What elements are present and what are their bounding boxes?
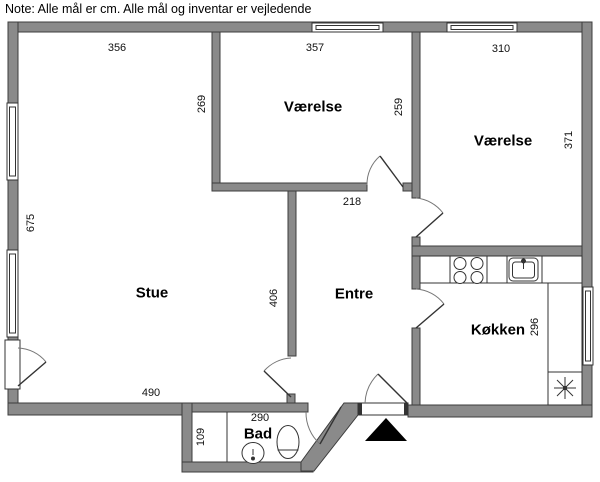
wall-entrance-diagonal [301, 403, 358, 471]
room-label-vaerelse2: Værelse [474, 133, 532, 150]
floorplan-svg [0, 0, 600, 482]
dim-bedroom1-left: 269 [196, 95, 208, 113]
asterisk-symbol-icon [554, 377, 576, 399]
kitchen-sink-icon [509, 258, 538, 281]
dim-bedroom2-top: 310 [492, 43, 510, 55]
wall-bad-bottom [182, 462, 313, 472]
wall-bedroom1-left [212, 32, 220, 184]
door-balcony-icon [5, 340, 46, 389]
door-entrance-icon [358, 374, 408, 415]
room-label-stue: Stue [136, 285, 169, 302]
wall-kitchen-left-lower [412, 328, 420, 405]
entrance-arrow-icon [365, 418, 407, 441]
room-label-bad: Bad [244, 426, 272, 443]
wall-bedroom1-bottom [212, 183, 367, 191]
dim-stue-top: 356 [108, 42, 126, 54]
room-label-entre: Entre [335, 286, 373, 303]
kitchen-counter-top [420, 256, 582, 283]
window-right-kitchen-icon [583, 287, 593, 365]
doors [5, 156, 444, 444]
door-stue-entre-icon [264, 358, 291, 397]
wall-stue-bottom [8, 403, 192, 415]
dim-bad-top: 290 [251, 412, 269, 424]
dim-bedroom1-top: 357 [306, 42, 324, 54]
dim-kitchen-right: 296 [529, 318, 541, 336]
room-label-vaerelse1: Værelse [284, 99, 342, 116]
dim-entre-left: 406 [268, 289, 280, 307]
wall-kitchen-top [412, 246, 582, 256]
window-left-lower-icon [7, 250, 18, 337]
toilet-icon [277, 426, 299, 459]
dim-bad-left: 109 [195, 428, 207, 446]
room-label-koekken: Køkken [471, 322, 525, 339]
door-bedroom1-icon [367, 156, 403, 187]
floor-plan: Note: Alle mål er cm. Alle mål og invent… [0, 0, 600, 482]
dim-bedroom1-right: 259 [393, 98, 405, 116]
wall-hinge-stub [287, 394, 295, 403]
windows [7, 23, 593, 365]
dim-stue-left: 675 [25, 214, 37, 232]
dim-bedroom2-right: 371 [563, 131, 575, 149]
door-kitchen-icon [416, 289, 444, 328]
window-top-bedroom1-icon [312, 23, 383, 32]
wall-bad-top [192, 403, 308, 412]
wash-basin-icon [242, 443, 264, 464]
dim-stue-bottom: 490 [142, 387, 160, 399]
wall-bedroom2-left [412, 32, 420, 198]
wall-kitchen-bottom [408, 405, 592, 417]
wall-stue-entre-divider [288, 191, 296, 356]
window-top-bedroom2-icon [447, 23, 517, 32]
wall-kitchen-left-upper [412, 256, 420, 289]
door-bedroom2-icon [416, 198, 443, 237]
dim-entre-top: 218 [343, 196, 361, 208]
window-left-upper-icon [7, 103, 18, 180]
inner-walls [192, 32, 582, 412]
